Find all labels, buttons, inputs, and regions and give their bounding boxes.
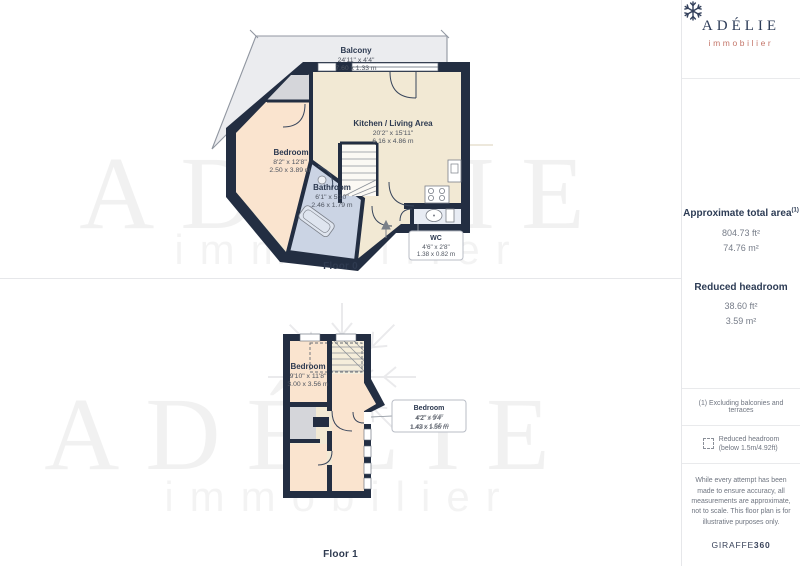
sidebar-spacer xyxy=(682,328,800,387)
bathroom-dim-ft: 6'1" x 5'10" xyxy=(315,194,349,201)
bathroom-dim-m: 2.46 x 1.79 m xyxy=(311,202,353,209)
bedroom-dim-m: 2.50 x 3.89 m xyxy=(269,167,311,174)
reduced-headroom-m: 3.59 m² xyxy=(682,314,800,329)
plan-area: ADÉLIE immobilier xyxy=(0,0,681,566)
floorplan-page: ADÉLIE immobilier xyxy=(0,0,800,566)
sink-counter-icon xyxy=(448,160,461,182)
balcony-corner-tick xyxy=(250,30,258,38)
disclaimer-block: While every attempt has been made to ens… xyxy=(682,463,800,566)
staircase xyxy=(332,341,364,374)
landing-area xyxy=(290,407,316,439)
disclaimer-text: While every attempt has been made to ens… xyxy=(682,464,800,536)
bottom-room xyxy=(290,444,327,491)
total-area-m: 74.76 m² xyxy=(682,241,800,256)
bedroom1-dim-m: 3.00 x 3.56 m xyxy=(287,381,329,388)
bedroom1-dim-ft: 9'10" x 11'8" xyxy=(290,373,327,380)
area-summary: Approximate total area(1) 804.73 ft² 74.… xyxy=(682,207,800,328)
logo-name: ADÉLIE xyxy=(702,18,780,35)
total-area-title: Approximate total area(1) xyxy=(682,207,800,220)
kitchen-label: Kitchen / Living Area xyxy=(353,119,433,128)
floor1-section: ADÉLIE immobilier xyxy=(0,279,681,566)
balcony-dim-m: 7.60 x 1.33 m xyxy=(335,65,377,72)
bedroom2-label: Bedroom xyxy=(414,405,445,412)
wc-dim-m: 1.38 x 0.82 m xyxy=(417,251,455,258)
floor1-label: Floor 1 xyxy=(0,549,681,560)
bathroom-label: Bathroom xyxy=(313,183,351,192)
bedroom-dim-ft: 8'2" x 12'8" xyxy=(273,159,307,166)
legend-line1: Reduced headroom xyxy=(719,436,780,443)
kitchen-dim-m: 6.16 x 4.86 m xyxy=(372,138,414,145)
sidebar: ADÉLIE immobilier Approximate total area… xyxy=(681,0,800,566)
dashed-square-icon xyxy=(703,438,714,449)
floor0-section: ADÉLIE immobilier xyxy=(0,0,681,279)
giraffe360-logo: GIRAFFE360 xyxy=(682,536,800,566)
wc-label: WC xyxy=(430,235,442,242)
logo-subtitle: immobilier xyxy=(709,38,774,48)
floor0-label: Floor 0 xyxy=(0,261,681,272)
floor0-plan: ADÉLIE immobilier xyxy=(0,0,681,278)
bedroom2-dim-m: 1.43 x 1.56 m xyxy=(410,424,448,431)
snowflake-icon xyxy=(682,0,704,22)
bedroom1-label: Bedroom xyxy=(290,362,325,371)
reduced-headroom-title: Reduced headroom xyxy=(682,282,800,293)
bedroom-label: Bedroom xyxy=(273,148,308,157)
legend-line2: (below 1.5m/4.92ft) xyxy=(719,445,778,452)
bedroom1-room xyxy=(290,341,327,402)
total-area-ft: 804.73 ft² xyxy=(682,226,800,241)
balcony-dim-ft: 24'11" x 4'4" xyxy=(338,57,375,64)
logo-block: ADÉLIE immobilier xyxy=(682,0,800,79)
balcony-label: Balcony xyxy=(340,46,372,55)
floor1-plan: ADÉLIE immobilier xyxy=(0,279,681,566)
footnote-ref: (1) xyxy=(792,208,799,214)
reduced-headroom-ft: 38.60 ft² xyxy=(682,299,800,314)
reduced-headroom-legend: Reduced headroom (below 1.5m/4.92ft) xyxy=(682,425,800,464)
kitchen-dim-ft: 20'2" x 15'11" xyxy=(373,130,414,137)
bedroom2-dim-ft: 4'2" x 9'4" xyxy=(415,415,443,422)
stove-icon xyxy=(425,186,449,203)
footnote-1: (1) Excluding balconies and terraces xyxy=(682,388,800,425)
wc-dim-ft: 4'6" x 2'8" xyxy=(422,244,450,251)
